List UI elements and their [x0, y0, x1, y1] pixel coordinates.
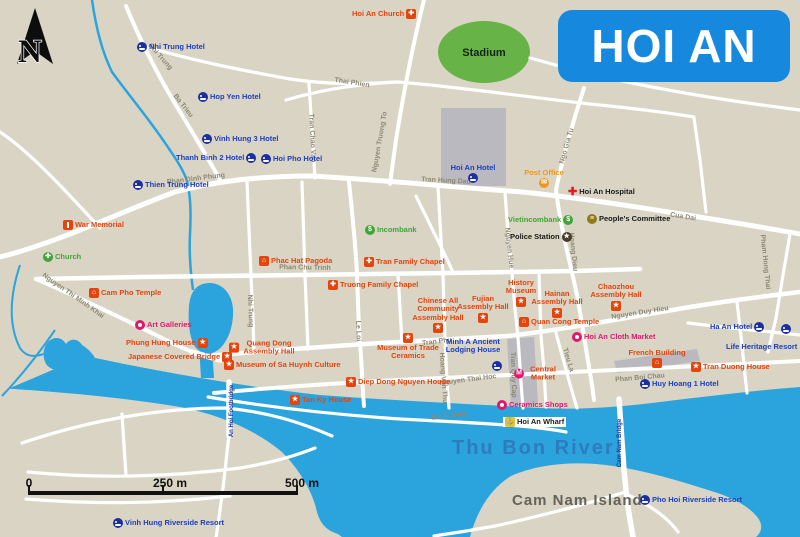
poi-minh-a-marker	[492, 361, 502, 371]
map-title-text: HOI AN	[591, 19, 756, 73]
poi-life-heritage-resort-marker	[781, 324, 791, 334]
poi-church: ✚ Church	[43, 252, 81, 262]
poi-hoi-an-cloth-market: Hoi An Cloth Market	[572, 332, 655, 342]
hotel-bed-icon	[261, 154, 271, 164]
poi-vinh-hung-3-hotel: Vinh Hung 3 Hotel	[202, 134, 278, 144]
ring-icon	[497, 400, 507, 410]
star-icon: ★	[611, 301, 621, 311]
poi-ha-an-hotel: Ha An Hotel	[710, 322, 764, 332]
poi-quang-dong-assembly-hall: ★ Quang Dong Assembly Hall	[229, 340, 297, 357]
ring-icon	[135, 320, 145, 330]
poi-post-office: Post Office ✉	[518, 169, 570, 188]
star-icon: ★	[478, 313, 488, 323]
poi-cam-pho-temple: ⌂ Cam Pho Temple	[89, 288, 161, 298]
star-icon: ★	[290, 395, 300, 405]
road-label-nhi-trung-2: Nhi Trung	[246, 295, 254, 328]
poi-hoi-pho-hotel: Hoi Pho Hotel	[261, 154, 322, 164]
north-arrow: N	[8, 4, 68, 74]
poi-police-station: Police Station ★	[510, 232, 572, 242]
memorial-icon	[63, 220, 73, 230]
poi-thanh-binh-2-hotel: Thanh Binh 2 Hotel	[176, 153, 256, 163]
island-label: Cam Nam Island	[512, 492, 643, 509]
poi-hoi-an-hotel: Hoi An Hotel	[441, 164, 505, 183]
hotel-bed-icon	[137, 42, 147, 52]
stadium-label: Stadium	[462, 47, 505, 59]
map-title: HOI AN	[558, 10, 790, 82]
poi-vietincombank: Vietincombank $	[508, 215, 573, 225]
building-icon: ⌂	[652, 358, 662, 368]
poi-pho-hoi-riverside-resort: Pho Hoi Riverside Resort	[640, 495, 742, 505]
poi-hoi-an-hospital: ✚ Hoi An Hospital	[568, 187, 635, 197]
poi-french-building: French Building ⌂	[626, 349, 688, 368]
poi-phung-hung-house: Phung Hung House ★	[126, 338, 208, 348]
poi-life-heritage-resort: Life Heritage Resort	[726, 343, 797, 351]
bank-dollar-icon: $	[563, 215, 573, 225]
poi-museum-sa-huynh: ★ Museum of Sa Huynh Culture	[224, 360, 341, 370]
poi-quan-cong-temple: ⌂ Quan Cong Temple	[519, 317, 599, 327]
star-icon: ★	[403, 333, 413, 343]
envelope-icon: ✉	[539, 178, 549, 188]
poi-thien-trung-hotel: Thien Trung Hotel	[133, 180, 209, 190]
hotel-bed-icon	[202, 134, 212, 144]
road-label-le-loi: Le Loi	[354, 321, 362, 342]
star-icon: ★	[229, 343, 239, 353]
hotel-bed-icon	[640, 495, 650, 505]
poi-central-market: M Central Market	[514, 366, 560, 383]
cross-icon: ✚	[364, 257, 374, 267]
poi-japanese-covered-bridge: Japanese Covered Bridge ★	[128, 352, 232, 362]
hotel-bed-icon	[133, 180, 143, 190]
bank-dollar-icon: $	[365, 225, 375, 235]
poi-museum-trade-ceramics: ★ Museum of Trade Ceramics	[377, 333, 439, 361]
scale-label-middle: 250 m	[153, 476, 187, 490]
cross-icon: ✚	[406, 9, 416, 19]
temple-icon: ⌂	[519, 317, 529, 327]
poi-diep-dong-nguyen-house: ★ Diep Dong Nguyen House	[346, 377, 450, 387]
government-building-icon: ≡	[587, 214, 597, 224]
market-m-icon: M	[514, 369, 524, 379]
poi-phac-hat-pagoda: ⌂ Phac Hat Pagoda	[259, 256, 332, 266]
scale-label-start: 0	[26, 476, 33, 490]
temple-icon: ⌂	[259, 256, 269, 266]
poi-tran-duong-house: ★ Tran Duong House	[691, 362, 770, 372]
poi-vinh-hung-riverside-resort: Vinh Hung Riverside Resort	[113, 518, 224, 528]
cross-icon: ✚	[328, 280, 338, 290]
poi-huy-hoang-1-hotel: Huy Hoang 1 Hotel	[640, 379, 719, 389]
hotel-bed-icon	[113, 518, 123, 528]
poi-nhi-trung-hotel: Nhi Trung Hotel	[137, 42, 205, 52]
anchor-icon: ⚓	[505, 417, 515, 427]
hotel-bed-icon	[492, 361, 502, 371]
hotel-bed-icon	[468, 173, 478, 183]
poi-war-memorial: War Memorial	[63, 220, 124, 230]
hotel-bed-icon	[198, 92, 208, 102]
poi-hoi-an-wharf: ⚓ Hoi An Wharf	[503, 417, 566, 427]
cam-nam-bridge-label: Cam Nam Bridge	[617, 419, 623, 467]
hotel-bed-icon	[754, 322, 764, 332]
poi-hop-yen-hotel: Hop Yen Hotel	[198, 92, 261, 102]
river-label: Thu Bon River	[452, 437, 615, 460]
poi-minh-a-lodging: Minh A Ancient Lodging House	[434, 338, 512, 355]
poi-ceramics-shops: Ceramics Shops	[497, 400, 568, 410]
hotel-bed-icon	[781, 324, 791, 334]
hoi-an-map: N HOI AN Stadium Thu Bon River Cam Nam I…	[0, 0, 800, 537]
hotel-bed-icon	[246, 153, 256, 163]
poi-hoi-an-church: Hoi An Church ✚	[352, 9, 416, 19]
star-icon: ★	[198, 338, 208, 348]
poi-incombank: $ Incombank	[365, 225, 417, 235]
creek-water	[44, 338, 97, 370]
poi-tan-ky-house: ★ Tan Ky House	[290, 395, 351, 405]
scale-label-end: 500 m	[285, 476, 319, 490]
church-cross-icon: ✚	[43, 252, 53, 262]
poi-chaozhou-assembly-hall: Chaozhou Assembly Hall ★	[587, 283, 645, 311]
ring-icon	[572, 332, 582, 342]
poi-peoples-committee: ≡ People's Committee	[587, 214, 670, 224]
police-badge-icon: ★	[562, 232, 572, 242]
star-icon: ★	[433, 323, 443, 333]
star-icon: ★	[224, 360, 234, 370]
an-hoi-footbridge-label: An Hoi Footbridge	[229, 385, 235, 437]
star-icon: ★	[691, 362, 701, 372]
hospital-cross-icon: ✚	[568, 187, 577, 197]
poi-tran-family-chapel: ✚ Tran Family Chapel	[364, 257, 445, 267]
star-icon: ★	[516, 297, 526, 307]
poi-art-galleries: Art Galleries	[135, 320, 192, 330]
svg-text:N: N	[18, 34, 42, 70]
poi-truong-family-chapel: ✚ Truong Family Chapel	[328, 280, 418, 290]
star-icon: ★	[346, 377, 356, 387]
temple-icon: ⌂	[89, 288, 99, 298]
hotel-bed-icon	[640, 379, 650, 389]
poi-history-museum: History Museum ★	[501, 279, 541, 307]
